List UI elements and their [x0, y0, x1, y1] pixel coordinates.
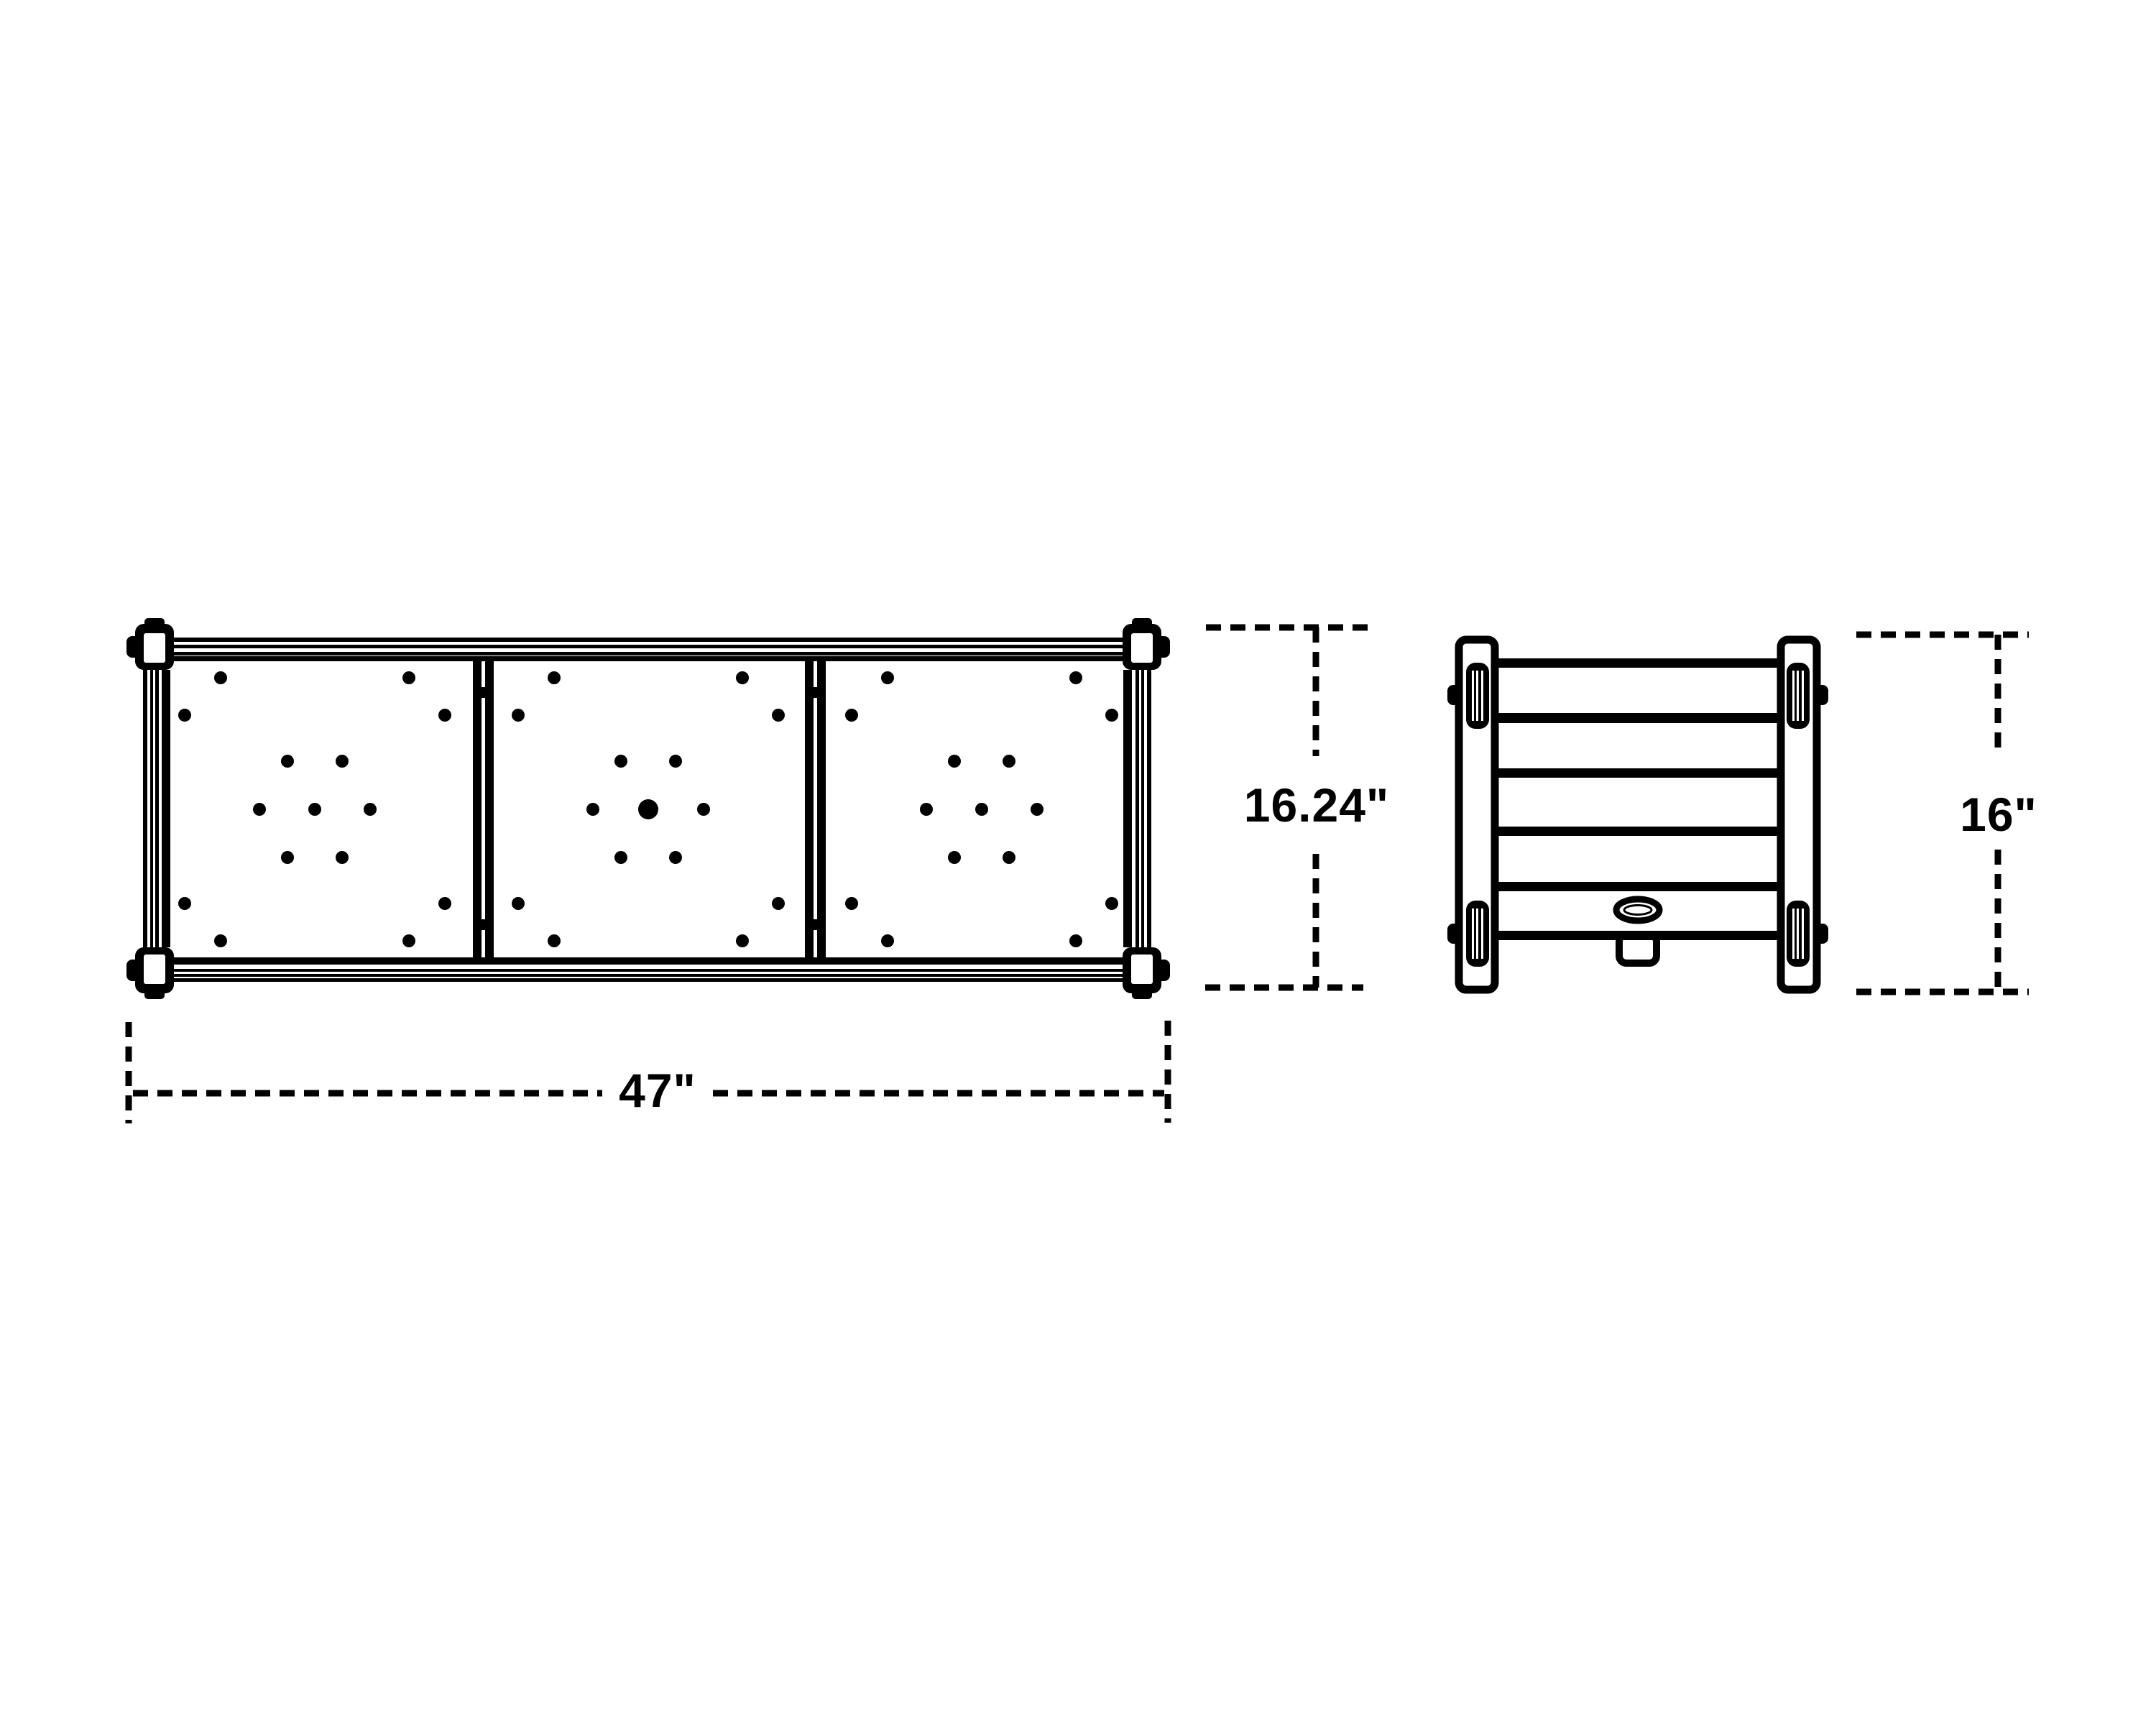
right-rail: [1123, 670, 1151, 947]
drawing-canvas: 16.24" 47" 16": [0, 0, 2156, 1725]
background: [0, 0, 2156, 1725]
width-dimension-label: 47": [619, 1064, 696, 1117]
oval-hole: [1616, 899, 1659, 921]
height-dimension-label: 16": [1960, 788, 2037, 841]
right-leg-bottom-pad: [1787, 901, 1810, 967]
left-leg-top-pad: [1466, 663, 1489, 729]
dimension-drawing: 16.24" 47" 16": [0, 0, 2156, 1725]
center-umbrella-hole: [638, 799, 658, 819]
left-rail: [143, 670, 170, 947]
depth-dimension-label: 16.24": [1244, 778, 1389, 832]
right-leg-top-pad: [1787, 663, 1810, 729]
left-leg-bottom-pad: [1466, 901, 1489, 967]
